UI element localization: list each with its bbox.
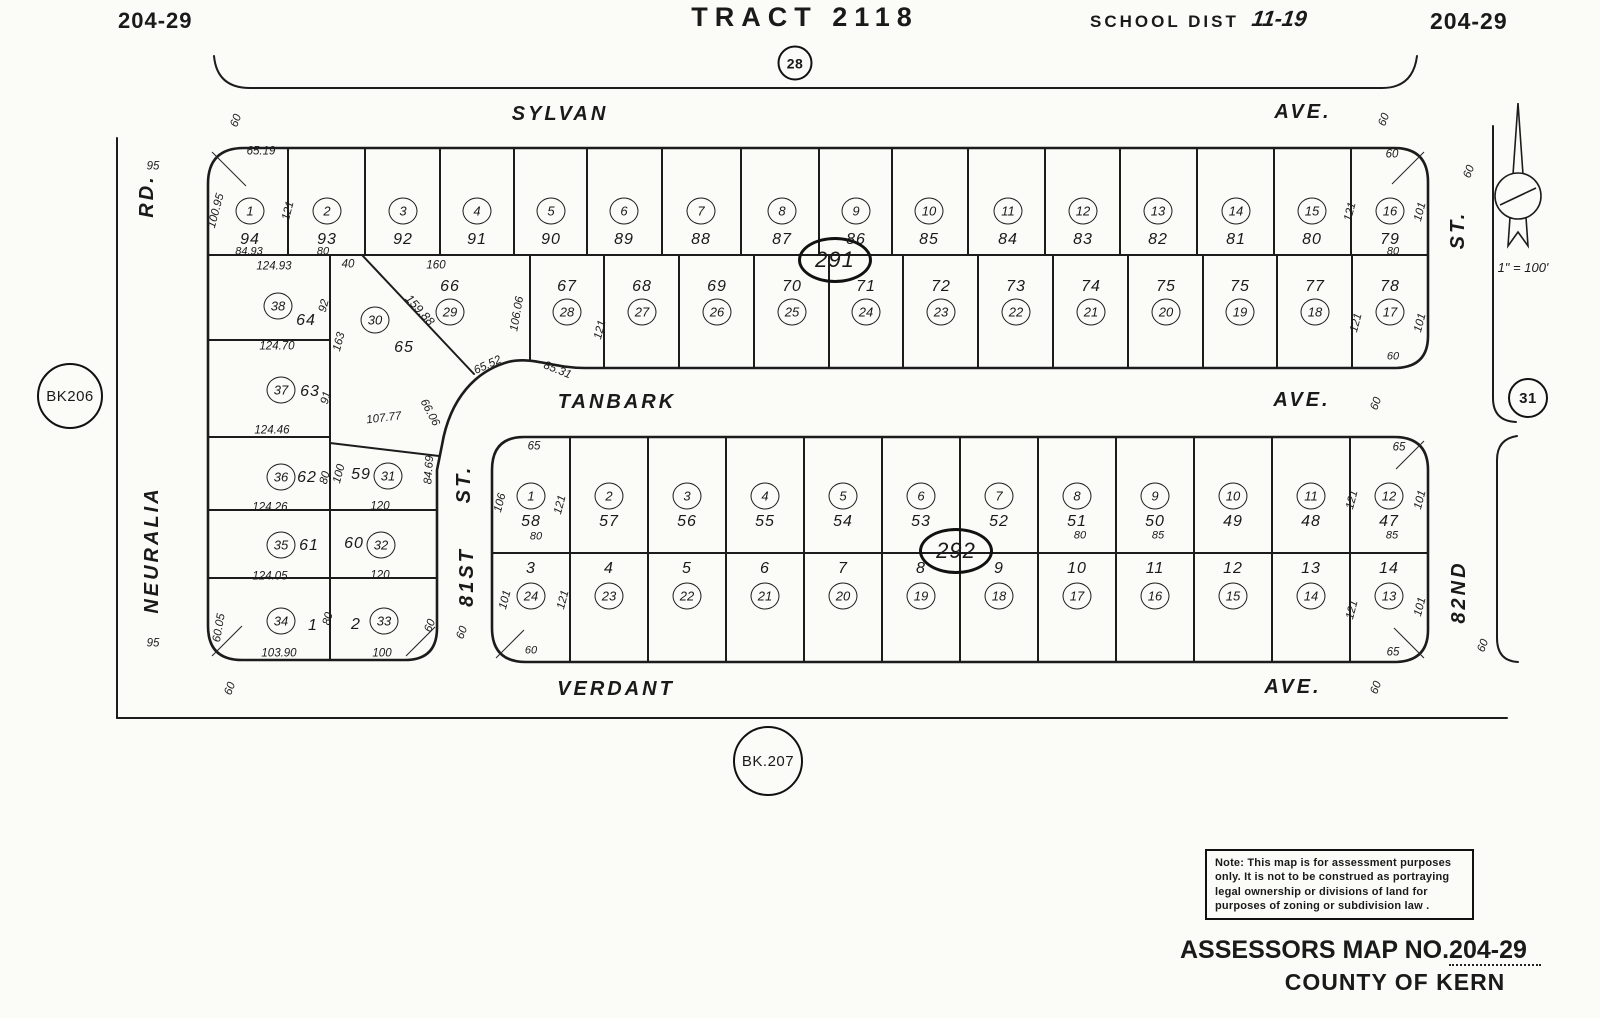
- lot-number-291-68: 68: [632, 279, 652, 295]
- lot-circle-291-1: 1: [236, 198, 265, 225]
- lot-circle-292-6: 6: [907, 483, 936, 510]
- dimension-label: 160: [426, 260, 445, 272]
- dimension-label: 100: [372, 648, 391, 660]
- lot-circle-292-12: 12: [1375, 483, 1404, 510]
- lot-number-292-11: 11: [1146, 561, 1165, 577]
- dimension-label: 124.26: [252, 502, 287, 514]
- book-reference-bk206: BK206: [37, 363, 103, 429]
- lot-circle-291-8: 8: [768, 198, 797, 225]
- lot-circle-291-27: 27: [628, 299, 657, 326]
- lot-circle-291-29: 29: [436, 299, 465, 326]
- dimension-label: 124.05: [252, 571, 287, 583]
- lot-circle-291-26: 26: [703, 299, 732, 326]
- section-circle-28: 28: [778, 46, 813, 81]
- lot-number-west-64: 64: [296, 313, 316, 329]
- lot-number-292-12: 12: [1223, 561, 1243, 577]
- dimension-label: 103.90: [261, 648, 296, 660]
- dimension-label: 40: [342, 259, 355, 271]
- lot-circle-292-16: 16: [1141, 583, 1170, 610]
- lot-circle-291-6: 6: [610, 198, 639, 225]
- lot-number-291-67: 67: [557, 279, 577, 295]
- dimension-label: 120: [370, 501, 389, 513]
- lot-circle-292-9: 9: [1141, 483, 1170, 510]
- lot-circle-292-2: 2: [595, 483, 624, 510]
- lot-number-291-87: 87: [772, 232, 792, 248]
- lot-number-west-1: 1: [308, 618, 318, 634]
- lot-number-292-47: 47: [1379, 514, 1399, 530]
- lot-circle-292-3: 3: [673, 483, 702, 510]
- lot-circle-west-31: 31: [374, 463, 403, 490]
- lot-number-292-57: 57: [599, 514, 619, 530]
- lot-circle-291-25: 25: [778, 299, 807, 326]
- lot-circle-292-11: 11: [1297, 483, 1326, 510]
- lot-number-west-61: 61: [299, 538, 319, 554]
- dimension-label: 80: [530, 532, 542, 543]
- dimension-label: 80: [317, 247, 329, 258]
- lot-number-291-88: 88: [691, 232, 711, 248]
- lot-number-291-70: 70: [782, 279, 802, 295]
- north-arrow-icon: [1495, 103, 1541, 246]
- section-circle-31: 31: [1508, 378, 1548, 418]
- lot-number-291-94: 94: [240, 232, 260, 248]
- lot-number-west-62: 62: [297, 470, 317, 486]
- lot-number-292-55: 55: [755, 514, 775, 530]
- street-label-82nd: 82ND: [1449, 560, 1469, 623]
- footer-county: COUNTY OF KERN: [1180, 969, 1600, 996]
- school-district-value: 11-19: [1250, 6, 1308, 32]
- lot-circle-292-18: 18: [985, 583, 1014, 610]
- lot-number-292-4: 4: [604, 561, 614, 577]
- lot-circle-291-20: 20: [1152, 299, 1181, 326]
- lot-number-292-6: 6: [760, 561, 770, 577]
- note-line: legal ownership or divisions of land for: [1215, 885, 1467, 899]
- map-footer: ASSESSORS MAP NO.204-29 COUNTY OF KERN: [1180, 936, 1600, 996]
- lot-number-292-53: 53: [911, 514, 931, 530]
- dimension-label: 65: [528, 441, 541, 453]
- book-reference-bk207: BK.207: [733, 726, 803, 796]
- lot-circle-291-14: 14: [1222, 198, 1251, 225]
- lot-circle-291-22: 22: [1002, 299, 1031, 326]
- lot-number-291-72: 72: [931, 279, 951, 295]
- lot-circle-west-33: 33: [370, 608, 399, 635]
- lot-circle-292-10: 10: [1219, 483, 1248, 510]
- lot-circle-292-5: 5: [829, 483, 858, 510]
- lot-number-west-2: 2: [351, 617, 361, 633]
- street-label-tanbark: TANBARK: [558, 392, 676, 412]
- street-label-ave: AVE.: [1274, 102, 1331, 122]
- lot-circle-291-21: 21: [1077, 299, 1106, 326]
- map-number-top-left: 204-29: [118, 8, 193, 34]
- lot-circle-291-11: 11: [994, 198, 1023, 225]
- lot-number-west-65: 65: [394, 340, 414, 356]
- lot-circle-291-18: 18: [1301, 299, 1330, 326]
- lot-number-292-5: 5: [682, 561, 692, 577]
- note-line: only. It is not to be construed as portr…: [1215, 870, 1467, 884]
- dimension-label: 65: [1393, 442, 1406, 454]
- dimension-label: 85: [1152, 531, 1164, 542]
- note-line: Note: This map is for assessment purpose…: [1215, 856, 1467, 870]
- lot-circle-291-13: 13: [1144, 198, 1173, 225]
- lot-number-291-78: 78: [1380, 279, 1400, 295]
- street-label-neuralia: NEURALIA: [142, 486, 162, 613]
- street-label-sylvan: SYLVAN: [512, 104, 609, 124]
- note-line: purposes of zoning or subdivision law .: [1215, 899, 1467, 913]
- lot-circle-292-7: 7: [985, 483, 1014, 510]
- lot-circle-west-34: 34: [267, 608, 296, 635]
- lot-number-291-85: 85: [919, 232, 939, 248]
- lot-circle-291-16: 16: [1376, 198, 1405, 225]
- street-label-rd: RD.: [137, 174, 157, 217]
- lot-circle-291-3: 3: [389, 198, 418, 225]
- lot-number-291-91: 91: [467, 232, 487, 248]
- lot-circle-291-12: 12: [1069, 198, 1098, 225]
- lot-circle-291-7: 7: [687, 198, 716, 225]
- lot-circle-west-36: 36: [267, 464, 296, 491]
- lot-number-291-83: 83: [1073, 232, 1093, 248]
- lot-number-292-3: 3: [526, 561, 536, 577]
- lot-number-291-77: 77: [1305, 279, 1325, 295]
- lot-number-west-60: 60: [344, 536, 364, 552]
- lot-number-291-69: 69: [707, 279, 727, 295]
- lot-number-291-73: 73: [1006, 279, 1026, 295]
- dimension-label: 95: [147, 638, 160, 650]
- lot-circle-292-19: 19: [907, 583, 936, 610]
- street-label-81st: 81ST: [457, 547, 477, 607]
- assessment-note: Note: This map is for assessment purpose…: [1205, 849, 1474, 920]
- lot-number-292-51: 51: [1067, 514, 1087, 530]
- tract-title: TRACT 2118: [655, 2, 955, 33]
- school-district-label: SCHOOL DIST: [1090, 12, 1239, 32]
- lot-circle-west-30: 30: [361, 307, 390, 334]
- lot-circle-west-38: 38: [264, 293, 293, 320]
- dimension-label: 60: [525, 646, 537, 657]
- street-label-verdant: VERDANT: [557, 679, 675, 699]
- lot-circle-292-14: 14: [1297, 583, 1326, 610]
- lot-number-west-63: 63: [300, 384, 320, 400]
- dimension-label: 120: [370, 570, 389, 582]
- lot-number-291-86: 86: [846, 232, 866, 248]
- lot-circle-291-23: 23: [927, 299, 956, 326]
- lot-number-292-52: 52: [989, 514, 1009, 530]
- lot-circle-292-4: 4: [751, 483, 780, 510]
- lot-circle-291-5: 5: [537, 198, 566, 225]
- footer-map-number: 204-29: [1449, 936, 1541, 966]
- lot-circle-292-15: 15: [1219, 583, 1248, 610]
- lot-number-292-58: 58: [521, 514, 541, 530]
- dimension-label: 80: [1387, 247, 1399, 258]
- lot-number-291-82: 82: [1148, 232, 1168, 248]
- lot-circle-292-17: 17: [1063, 583, 1092, 610]
- lot-number-292-13: 13: [1301, 561, 1321, 577]
- dimension-label: 60: [1386, 149, 1399, 161]
- assessor-map-page: 204-29 TRACT 2118 SCHOOL DIST 11-19 204-…: [0, 0, 1600, 1018]
- lot-circle-292-8: 8: [1063, 483, 1092, 510]
- lot-number-292-56: 56: [677, 514, 697, 530]
- street-label-st: ST.: [454, 465, 474, 504]
- dimension-label: 65.19: [247, 146, 276, 158]
- dimension-label: 85: [1386, 531, 1398, 542]
- lot-circle-west-37: 37: [267, 377, 296, 404]
- dimension-label: 80: [1074, 531, 1086, 542]
- lot-circle-291-19: 19: [1226, 299, 1255, 326]
- dimension-label: 65: [1387, 647, 1400, 659]
- scale-label: 1" = 100': [1478, 260, 1568, 275]
- lot-number-291-80: 80: [1302, 232, 1322, 248]
- lot-number-291-75: 75: [1230, 279, 1250, 295]
- lot-number-291-93: 93: [317, 232, 337, 248]
- lot-number-292-50: 50: [1145, 514, 1165, 530]
- dimension-label: 124.93: [256, 261, 291, 273]
- lot-circle-291-15: 15: [1298, 198, 1327, 225]
- lot-number-west-59: 59: [351, 467, 371, 483]
- lot-circle-291-2: 2: [313, 198, 342, 225]
- footer-title: ASSESSORS MAP NO.: [1180, 936, 1449, 964]
- lot-circle-291-9: 9: [842, 198, 871, 225]
- lot-circle-292-1: 1: [517, 483, 546, 510]
- lot-number-291-71: 71: [856, 279, 876, 295]
- lot-number-291-75: 75: [1156, 279, 1176, 295]
- lot-number-292-54: 54: [833, 514, 853, 530]
- dimension-label: 124.46: [254, 425, 289, 437]
- dimension-label: 60: [1387, 352, 1399, 363]
- lot-circle-292-21: 21: [751, 583, 780, 610]
- lot-number-291-74: 74: [1081, 279, 1101, 295]
- lot-number-291-89: 89: [614, 232, 634, 248]
- lot-circle-292-13: 13: [1375, 583, 1404, 610]
- lot-number-291-81: 81: [1226, 232, 1246, 248]
- lot-circle-292-20: 20: [829, 583, 858, 610]
- block-292-label: 292: [919, 528, 993, 574]
- lot-number-292-9: 9: [994, 561, 1004, 577]
- lot-circle-291-17: 17: [1376, 299, 1405, 326]
- lot-circle-292-23: 23: [595, 583, 624, 610]
- dimension-label: 84.93: [235, 247, 263, 258]
- lot-number-292-10: 10: [1067, 561, 1087, 577]
- lot-circle-292-24: 24: [517, 583, 546, 610]
- lot-number-292-7: 7: [838, 561, 848, 577]
- lot-number-291-84: 84: [998, 232, 1018, 248]
- street-label-st: ST.: [1448, 211, 1468, 250]
- street-label-ave: AVE.: [1273, 390, 1330, 410]
- lot-circle-291-24: 24: [852, 299, 881, 326]
- lot-number-291-92: 92: [393, 232, 413, 248]
- lot-circle-292-22: 22: [673, 583, 702, 610]
- lot-circle-west-32: 32: [367, 532, 396, 559]
- dimension-label: 95: [147, 161, 160, 173]
- lot-number-291-66: 66: [440, 279, 460, 295]
- lot-number-292-48: 48: [1301, 514, 1321, 530]
- lot-number-292-49: 49: [1223, 514, 1243, 530]
- map-number-top-right: 204-29: [1430, 8, 1508, 35]
- lot-number-291-79: 79: [1380, 232, 1400, 248]
- dimension-label: 84.69: [423, 455, 436, 485]
- lot-circle-west-35: 35: [267, 532, 296, 559]
- lot-number-291-90: 90: [541, 232, 561, 248]
- lot-circle-291-28: 28: [553, 299, 582, 326]
- lot-circle-291-10: 10: [915, 198, 944, 225]
- lot-number-292-14: 14: [1379, 561, 1399, 577]
- lot-circle-291-4: 4: [463, 198, 492, 225]
- street-label-ave: AVE.: [1264, 677, 1321, 697]
- lot-number-292-8: 8: [916, 561, 926, 577]
- dimension-label: 124.70: [259, 341, 294, 353]
